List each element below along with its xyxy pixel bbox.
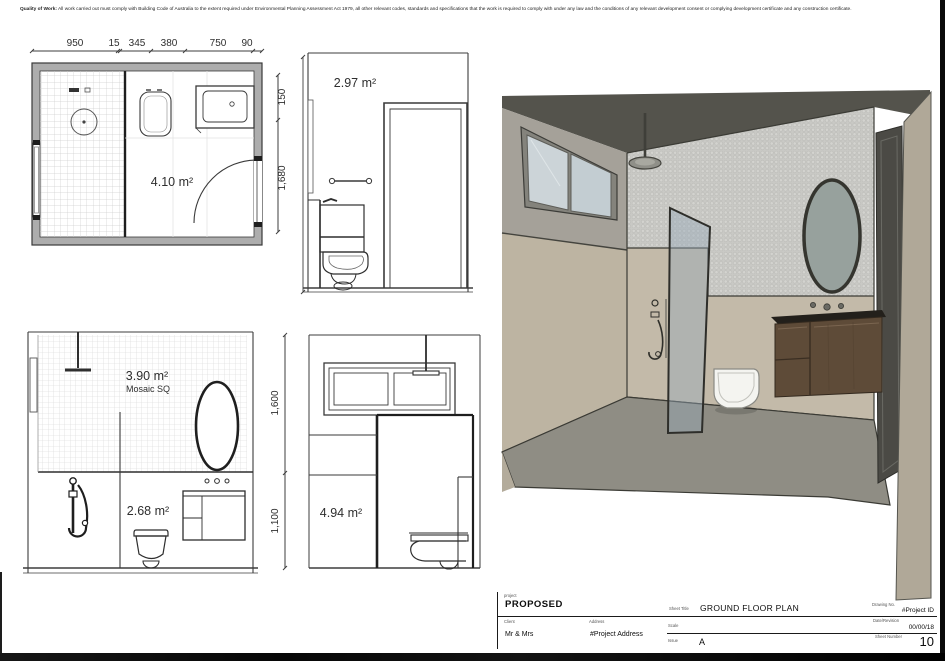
address-value: #Project Address <box>590 631 643 638</box>
dim-15: 15 <box>108 38 120 49</box>
scale-label: Scale <box>668 623 678 628</box>
elevation-b-finish: Mosaic SQ <box>126 384 170 394</box>
plan-top-dimensions <box>30 49 264 53</box>
plan-area-label: 4.10 m² <box>151 175 193 189</box>
dim-1100: 1,100 <box>270 508 281 533</box>
sheet-title-label: Sheet Title <box>669 606 689 611</box>
screen-edge-left <box>0 572 2 661</box>
dim-750: 750 <box>210 38 227 49</box>
elevation-door <box>384 103 467 288</box>
dim-950: 950 <box>67 38 84 49</box>
elevation-c-dimensions <box>283 333 287 570</box>
issue-label: Issue <box>668 638 678 643</box>
floor-plan-drawing: 950 15 345 380 750 90 <box>15 30 293 302</box>
vanity-elevation <box>183 479 245 540</box>
towel-rail <box>329 178 371 183</box>
quality-of-work-note: Quality of Work: All work carried out mu… <box>20 7 936 13</box>
elevation-a-area: 2.97 m² <box>334 76 376 90</box>
screen-edge-right <box>940 0 945 661</box>
elevation-b-area: 2.68 m² <box>127 504 169 518</box>
shower-pipe <box>413 335 439 375</box>
render-vanity <box>771 310 886 397</box>
date-revision-label: Date/Revision <box>873 618 899 623</box>
dim-345: 345 <box>129 38 146 49</box>
shower-mixer <box>69 88 79 92</box>
sheet-number-value: 10 <box>874 634 934 649</box>
elevation-window-wall: 1,600 1,100 4.94 m <box>270 325 485 575</box>
dim-90: 90 <box>241 38 253 49</box>
elevation-c-area: 4.94 m² <box>320 506 362 520</box>
dim-1680: 1,680 <box>277 165 288 190</box>
plan-wall-niche <box>33 140 40 220</box>
elevation-niche <box>308 100 313 193</box>
client-value: Mr & Mrs <box>505 631 533 638</box>
title-block: project PROPOSED Client Mr & Mrs Address… <box>497 590 940 652</box>
plan-toilet <box>140 90 171 136</box>
elevation-toilet-wall: 2.97 m² <box>293 40 483 298</box>
render-glass-screen <box>668 208 710 433</box>
issue-value: A <box>699 637 705 647</box>
toilet-front <box>134 530 168 568</box>
date-revision-value: 00/00/18 <box>874 624 934 631</box>
note-text: All work carried out must comply with Bu… <box>58 7 852 12</box>
elevation-shower-wall: 3.90 m² Mosaic SQ 2.68 m² <box>15 325 270 580</box>
dim-150: 150 <box>277 88 288 105</box>
client-label: Client <box>504 619 515 624</box>
dim-380: 380 <box>161 38 178 49</box>
elevation-frame <box>301 53 473 294</box>
title-block-rule-1 <box>497 616 937 617</box>
elevation-b-niche <box>30 358 37 412</box>
project-label: project <box>504 593 517 598</box>
elevation-toilet <box>308 199 368 290</box>
elevation-b-wall-area: 3.90 m² <box>126 369 168 383</box>
bathroom-3d-render <box>498 86 932 602</box>
title-block-left-rule <box>497 592 498 649</box>
hand-shower <box>69 478 88 537</box>
drawing-no-value: #Project ID <box>874 607 934 614</box>
dim-1600: 1,600 <box>270 390 281 415</box>
address-label: Address <box>589 619 604 624</box>
screen-edge-bottom <box>0 653 945 661</box>
toilet-side <box>409 533 468 569</box>
sheet-title-value: GROUND FLOOR PLAN <box>700 603 799 613</box>
render-toilet <box>714 369 759 415</box>
elevation-c-walls <box>309 415 473 568</box>
drawing-sheet: Quality of Work: All work carried out mu… <box>0 0 945 661</box>
plan-shower-zone <box>40 71 125 237</box>
render-oval-mirror <box>804 180 860 292</box>
oval-mirror-elevation <box>196 382 238 470</box>
note-prefix: Quality of Work: <box>20 7 57 12</box>
plan-basin <box>196 86 254 133</box>
project-value: PROPOSED <box>505 599 563 610</box>
